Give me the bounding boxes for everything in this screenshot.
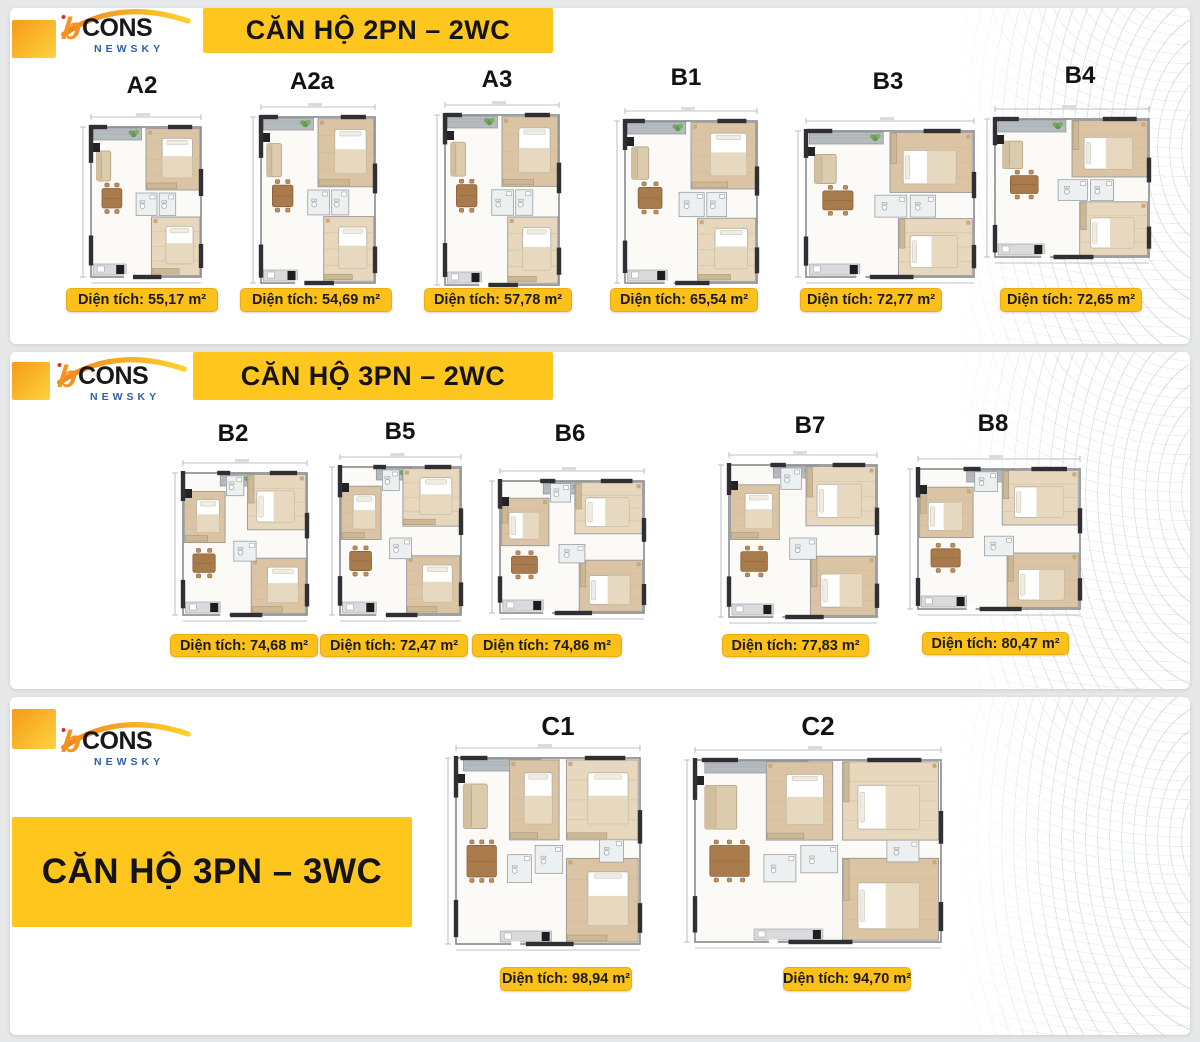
plan-code-label: B8: [978, 410, 1009, 438]
floor-plan-image: [170, 456, 314, 624]
floor-plan-image: [682, 743, 948, 951]
area-badge: Diện tích: 72,47 m²: [320, 634, 468, 657]
brochure-page: { "brand": { "b": "b", "name": "CONS", "…: [0, 0, 1200, 1042]
plan-code-label: B5: [385, 418, 416, 446]
plan-code-label: B1: [671, 64, 702, 92]
floor-plan-block: B7 Diện tích: 77,83 m²: [10, 352, 1190, 689]
plan-code-label: A2: [127, 72, 158, 100]
plan-code-label: B4: [1065, 62, 1096, 90]
area-badge: Diện tích: 74,68 m²: [170, 634, 318, 657]
area-badge: Diện tích: 80,47 m²: [922, 632, 1069, 655]
plan-code-label: C2: [801, 711, 834, 742]
section-card: b CONS NEWSKY CĂN HỘ 3PN – 2WC B2 Diện t…: [10, 352, 1190, 689]
floor-plan-image: [612, 104, 764, 292]
area-badge: Diện tích: 57,78 m²: [424, 288, 572, 312]
floor-plan-block: B4 Diện tích: 72,65 m²: [10, 8, 1190, 344]
floor-plan-block: B6 Diện tích: 74,86 m²: [10, 352, 1190, 689]
area-badge: Diện tích: 77,83 m²: [722, 634, 869, 657]
floor-plan-block: B8 Diện tích: 80,47 m²: [10, 352, 1190, 689]
area-badge: Diện tích: 65,54 m²: [610, 288, 758, 312]
area-badge: Diện tích: 74,86 m²: [472, 634, 622, 657]
floor-plan-image: [443, 741, 647, 953]
plans-row: B2 Diện tích: 74,68 m² B5 Diện tích: 72,…: [10, 352, 1190, 689]
floor-plan-block: B1 Diện tích: 65,54 m²: [10, 8, 1190, 344]
plan-code-label: B7: [795, 412, 826, 440]
floor-plan-image: [905, 452, 1087, 618]
section-card: b CONS NEWSKY CĂN HỘ 2PN – 2WC A2 Diện t…: [10, 8, 1190, 344]
floor-plan-image: [432, 98, 566, 294]
floor-plan-block: C2 Diện tích: 94,70 m²: [10, 697, 1190, 1035]
floor-plan-block: B2 Diện tích: 74,68 m²: [10, 352, 1190, 689]
floor-plan-block: B3 Diện tích: 72,77 m²: [10, 8, 1190, 344]
floor-plan-image: [487, 464, 651, 622]
area-badge: Diện tích: 98,94 m²: [500, 967, 632, 991]
area-badge: Diện tích: 54,69 m²: [240, 288, 392, 312]
floor-plan-image: [982, 102, 1156, 266]
floor-plan-block: A3 Diện tích: 57,78 m²: [10, 8, 1190, 344]
plan-code-label: B3: [873, 68, 904, 96]
floor-plan-image: [78, 110, 208, 286]
floor-plan-block: C1 Diện tích: 98,94 m²: [10, 697, 1190, 1035]
plan-code-label: B6: [555, 420, 586, 448]
area-badge: Diện tích: 72,65 m²: [1000, 288, 1142, 312]
section-card: b CONS NEWSKY CĂN HỘ 3PN – 3WC C1 Diện t…: [10, 697, 1190, 1035]
plan-code-label: B2: [218, 420, 249, 448]
floor-plan-image: [793, 114, 981, 286]
plans-row: A2 Diện tích: 55,17 m² A2a Diện tích: 54…: [10, 8, 1190, 344]
floor-plan-image: [327, 450, 468, 624]
floor-plan-block: A2 Diện tích: 55,17 m²: [10, 8, 1190, 344]
area-badge: Diện tích: 55,17 m²: [66, 288, 218, 312]
floor-plan-block: B5 Diện tích: 72,47 m²: [10, 352, 1190, 689]
floor-plan-block: A2a Diện tích: 54,69 m²: [10, 8, 1190, 344]
plan-code-label: C1: [541, 711, 574, 742]
area-badge: Diện tích: 94,70 m²: [783, 967, 911, 991]
floor-plan-image: [248, 100, 382, 292]
plans-row: C1 Diện tích: 98,94 m² C2 Diện tích: 94,…: [10, 697, 1190, 1035]
floor-plan-image: [716, 448, 884, 626]
plan-code-label: A2a: [290, 68, 334, 96]
plan-code-label: A3: [482, 66, 513, 94]
area-badge: Diện tích: 72,77 m²: [800, 288, 942, 312]
